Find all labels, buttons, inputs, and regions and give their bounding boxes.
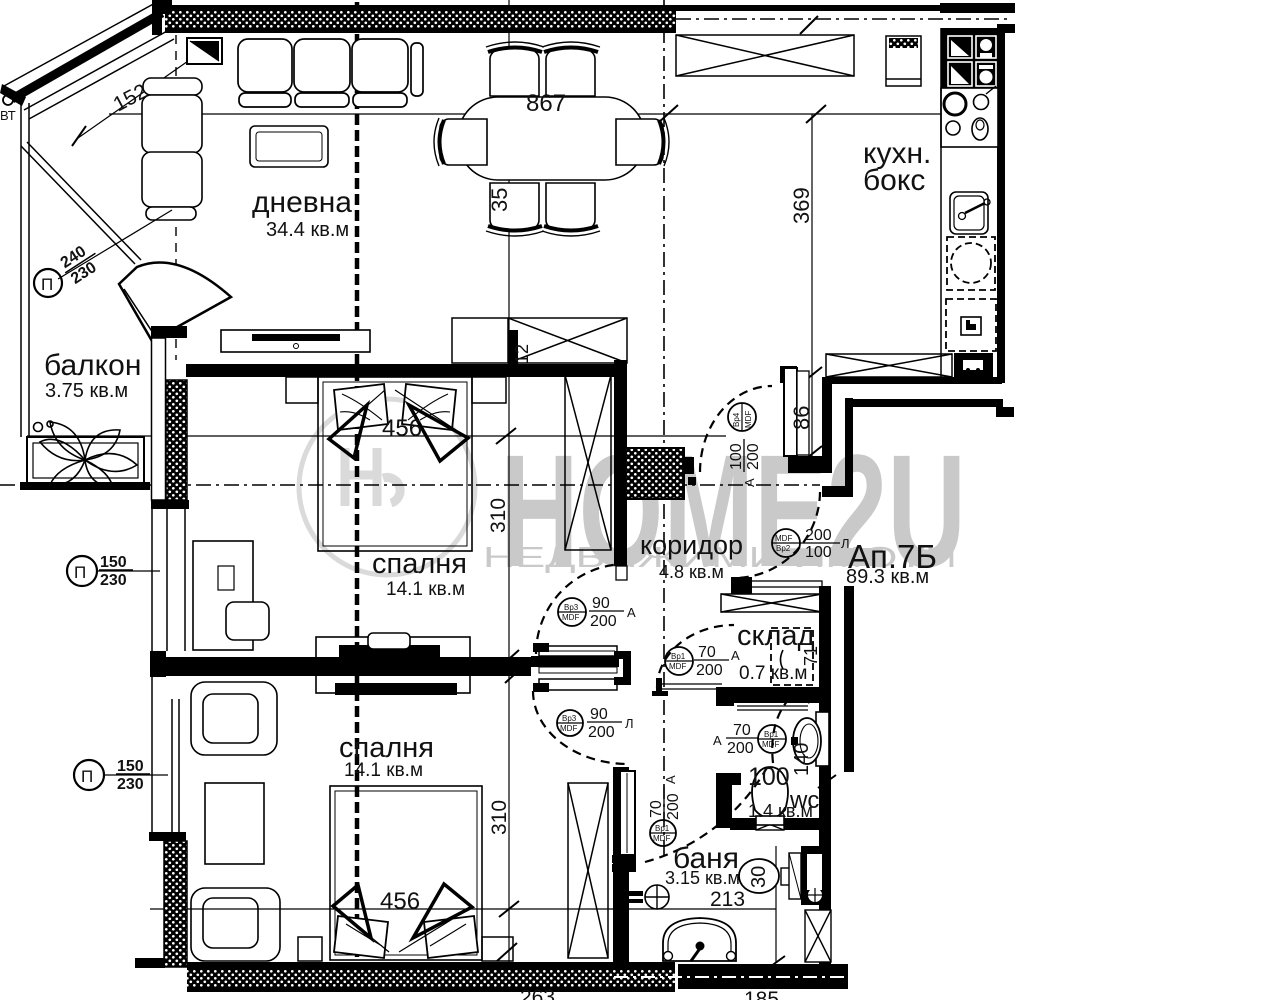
svg-text:1.4 кв.м: 1.4 кв.м bbox=[748, 801, 813, 821]
svg-text:200: 200 bbox=[727, 740, 754, 757]
svg-text:MDF: MDF bbox=[669, 662, 686, 671]
svg-text:150: 150 bbox=[117, 758, 144, 775]
svg-text:90: 90 bbox=[590, 706, 608, 723]
svg-text:А: А bbox=[627, 605, 636, 620]
svg-text:Вр1: Вр1 bbox=[671, 652, 686, 661]
svg-text:200: 200 bbox=[745, 443, 762, 470]
svg-text:90: 90 bbox=[592, 595, 610, 612]
svg-text:310: 310 bbox=[487, 498, 510, 533]
svg-text:Л: Л bbox=[625, 716, 634, 731]
svg-text:30: 30 bbox=[748, 866, 770, 888]
svg-text:100: 100 bbox=[805, 544, 832, 561]
svg-text:коридор: коридор bbox=[640, 530, 743, 560]
svg-text:дневна: дневна bbox=[252, 186, 352, 219]
svg-text:71: 71 bbox=[801, 646, 821, 666]
svg-text:3.15 кв.м: 3.15 кв.м bbox=[665, 868, 740, 888]
svg-text:100: 100 bbox=[728, 443, 745, 470]
svg-text:14.1 кв.м: 14.1 кв.м bbox=[344, 760, 423, 781]
svg-text:140: 140 bbox=[791, 743, 813, 776]
svg-text:MDF: MDF bbox=[653, 834, 670, 843]
svg-text:230: 230 bbox=[100, 572, 127, 589]
svg-text:200: 200 bbox=[696, 662, 723, 679]
svg-text:А: А bbox=[731, 648, 740, 663]
svg-text:А: А bbox=[713, 733, 722, 748]
svg-text:0.7 кв.м: 0.7 кв.м bbox=[739, 663, 807, 684]
svg-text:3.75 кв.м: 3.75 кв.м bbox=[45, 380, 128, 402]
svg-text:185: 185 bbox=[744, 988, 779, 1000]
svg-text:456: 456 bbox=[380, 888, 420, 915]
svg-text:14.1 кв.м: 14.1 кв.м bbox=[386, 579, 465, 600]
svg-text:200: 200 bbox=[665, 793, 682, 820]
svg-text:263: 263 bbox=[520, 986, 555, 1000]
svg-text:70: 70 bbox=[698, 644, 716, 661]
svg-text:35: 35 bbox=[487, 188, 512, 212]
svg-text:867: 867 bbox=[526, 90, 566, 117]
svg-text:70: 70 bbox=[648, 800, 665, 818]
svg-text:150: 150 bbox=[100, 554, 127, 571]
svg-text:213: 213 bbox=[710, 888, 745, 911]
svg-text:балкон: балкон bbox=[44, 349, 141, 382]
svg-text:П: П bbox=[41, 275, 53, 294]
svg-text:Вр3: Вр3 bbox=[564, 603, 579, 612]
svg-text:П: П bbox=[81, 767, 93, 786]
svg-text:спалня: спалня bbox=[372, 548, 467, 580]
svg-text:бокс: бокс bbox=[863, 164, 925, 197]
svg-text:456: 456 bbox=[382, 415, 422, 442]
svg-text:Вр3: Вр3 bbox=[562, 714, 577, 723]
svg-text:MDF: MDF bbox=[775, 534, 792, 543]
svg-text:230: 230 bbox=[117, 776, 144, 793]
svg-text:MDF: MDF bbox=[744, 411, 753, 428]
svg-text:Вр1: Вр1 bbox=[655, 824, 670, 833]
svg-text:89.3 кв.м: 89.3 кв.м bbox=[846, 566, 929, 588]
svg-text:369: 369 bbox=[789, 187, 814, 224]
svg-text:86: 86 bbox=[789, 406, 814, 430]
svg-text:Вр4: Вр4 bbox=[732, 412, 741, 427]
svg-text:ВТ: ВТ bbox=[0, 108, 16, 123]
svg-text:200: 200 bbox=[590, 613, 617, 630]
svg-text:4.8 кв.м: 4.8 кв.м bbox=[659, 562, 724, 582]
svg-text:А: А bbox=[663, 775, 678, 784]
svg-text:MDF: MDF bbox=[762, 740, 779, 749]
svg-text:Вр2: Вр2 bbox=[776, 544, 791, 553]
svg-text:34.4 кв.м: 34.4 кв.м bbox=[266, 219, 349, 241]
svg-text:200: 200 bbox=[588, 724, 615, 741]
svg-text:Л: Л bbox=[841, 536, 850, 551]
svg-text:А: А bbox=[742, 478, 757, 487]
svg-text:70: 70 bbox=[733, 722, 751, 739]
svg-text:310: 310 bbox=[488, 800, 511, 835]
svg-text:100: 100 bbox=[748, 763, 790, 791]
svg-text:12: 12 bbox=[512, 344, 532, 364]
svg-text:200: 200 bbox=[805, 527, 832, 544]
svg-text:MDF: MDF bbox=[562, 613, 579, 622]
svg-text:П: П bbox=[74, 563, 86, 582]
svg-text:Вр1: Вр1 bbox=[764, 730, 779, 739]
svg-text:MDF: MDF bbox=[560, 724, 577, 733]
